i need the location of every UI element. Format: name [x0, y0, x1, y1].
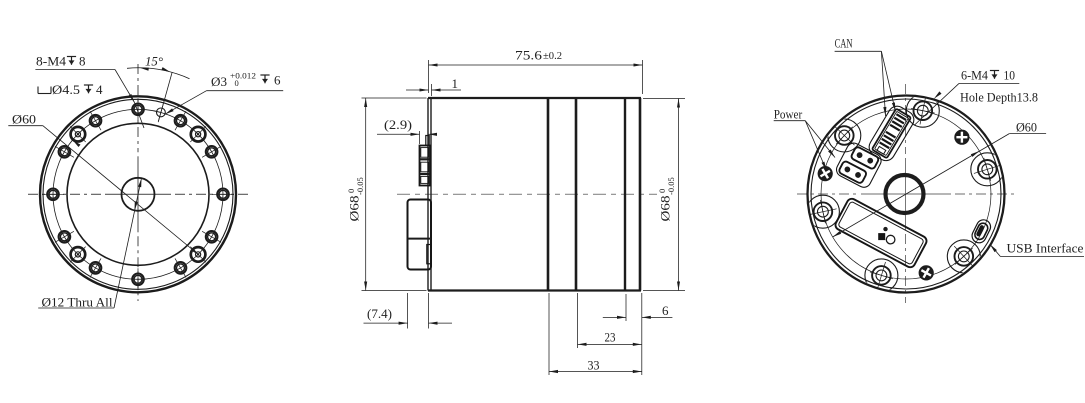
svg-text:33: 33 [588, 358, 600, 373]
svg-text:Ø12 Thru All: Ø12 Thru All [42, 295, 113, 310]
svg-text:Ø68: Ø68 [347, 196, 362, 222]
svg-text:USB Interface: USB Interface [1007, 241, 1084, 256]
svg-text:4: 4 [96, 82, 103, 97]
svg-text:6: 6 [662, 303, 669, 318]
svg-text:Hole Depth13.8: Hole Depth13.8 [960, 90, 1038, 105]
svg-text:1: 1 [452, 76, 459, 91]
svg-text:0: 0 [235, 78, 239, 88]
svg-text:8-M4: 8-M4 [36, 54, 67, 69]
svg-text:Ø3: Ø3 [211, 74, 227, 89]
svg-text:8: 8 [79, 54, 86, 69]
svg-text:23: 23 [605, 330, 616, 345]
svg-text:±0.2: ±0.2 [543, 51, 562, 62]
svg-text:6-M4: 6-M4 [961, 68, 988, 83]
svg-text:10: 10 [1004, 68, 1016, 83]
svg-text:Ø60: Ø60 [1016, 120, 1037, 135]
svg-text:(2.9): (2.9) [384, 117, 412, 132]
svg-text:6: 6 [274, 73, 281, 88]
svg-text:CAN: CAN [835, 36, 853, 51]
svg-text:-0.05: -0.05 [355, 177, 365, 195]
svg-text:Power: Power [774, 107, 803, 122]
svg-text:15°: 15° [145, 54, 163, 69]
svg-text:Ø60: Ø60 [12, 112, 36, 127]
svg-text:75.6: 75.6 [515, 48, 543, 63]
svg-text:Ø68: Ø68 [658, 196, 673, 222]
svg-text:-0.05: -0.05 [666, 177, 676, 195]
svg-text:Ø4.5: Ø4.5 [52, 82, 80, 97]
svg-text:(7.4): (7.4) [367, 306, 392, 321]
